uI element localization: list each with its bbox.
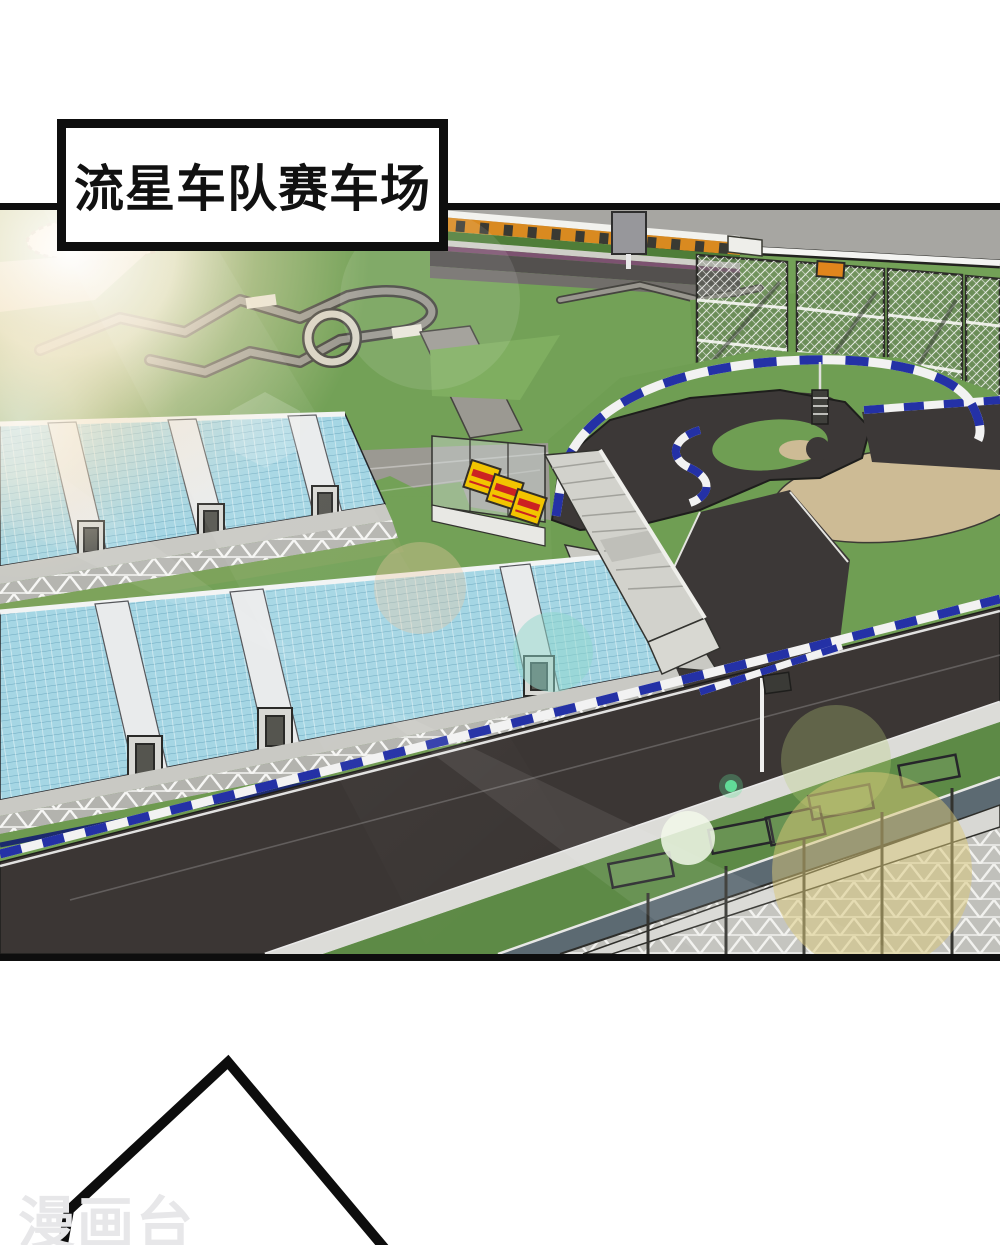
watermark-text: 漫画台 [18,1178,195,1245]
panel-border-bottom [0,954,1000,961]
caption-text: 流星车队赛车场 [74,149,431,221]
caption-box: 流星车队赛车场 [57,119,448,251]
comic-page: 流星车队赛车场 漫画台 [0,0,1000,1245]
